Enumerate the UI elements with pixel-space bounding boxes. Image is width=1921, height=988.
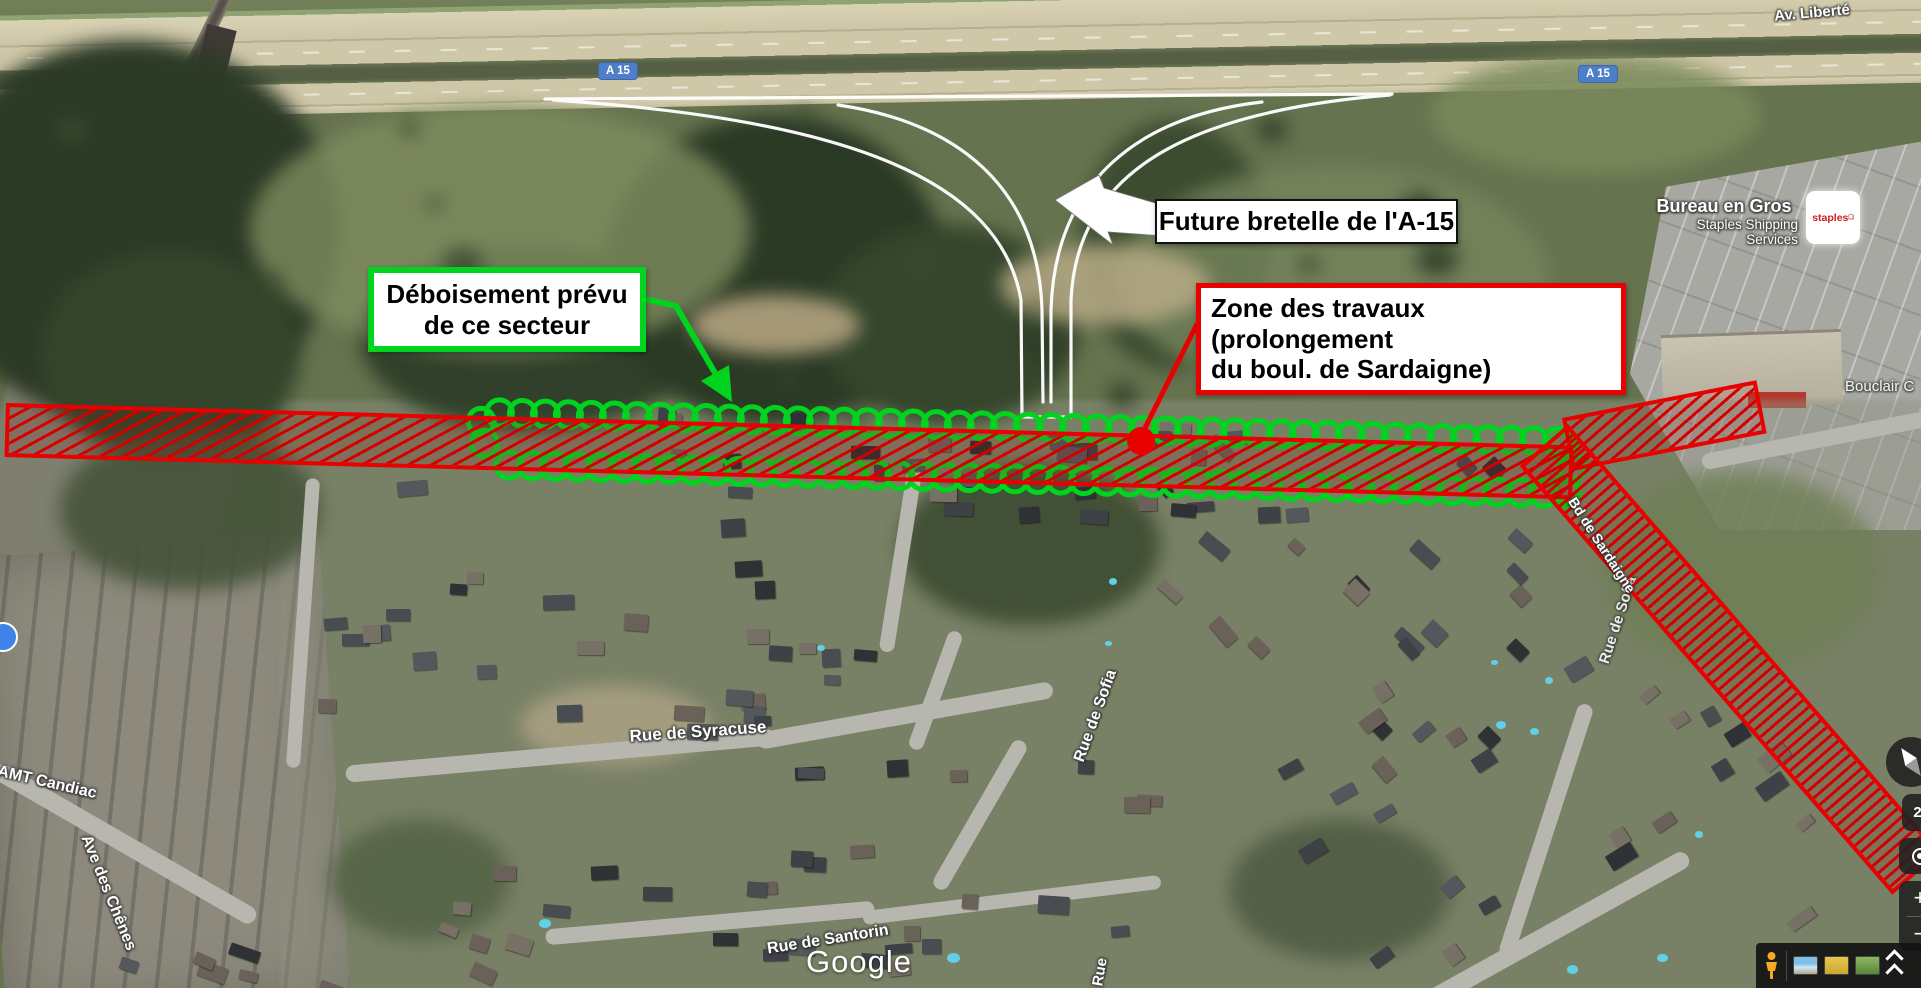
house-roof xyxy=(727,486,752,498)
house-roof xyxy=(850,844,875,859)
house-roof xyxy=(791,850,814,867)
poi-bureau-en-gros-block: Bureau en Gros Staples Shipping Services xyxy=(1648,196,1800,247)
house-roof xyxy=(1018,507,1039,525)
tree-blob xyxy=(732,367,756,386)
backyard-pool xyxy=(1545,677,1553,684)
house-roof xyxy=(887,760,909,778)
backyard-pool xyxy=(1657,954,1668,962)
house-roof xyxy=(747,881,769,898)
house-roof xyxy=(450,584,467,596)
house-roof xyxy=(721,518,746,538)
house-roof xyxy=(1037,895,1069,915)
backyard-pool xyxy=(1105,641,1112,646)
house-roof xyxy=(577,641,604,656)
house-roof xyxy=(543,595,574,611)
backyard-pool xyxy=(817,645,825,651)
expand-chevrons[interactable] xyxy=(1888,952,1901,979)
tree-blob xyxy=(400,120,420,136)
house-roof xyxy=(713,933,738,946)
label-deforestation-line2: de ce secteur xyxy=(376,310,638,341)
house-roof xyxy=(1110,925,1129,937)
compass-needle-icon xyxy=(1886,737,1921,787)
imagery-thumbnail-3[interactable] xyxy=(1855,956,1880,975)
house-roof xyxy=(755,581,775,600)
poi-label-staples-shipping: Staples Shipping xyxy=(1648,217,1800,232)
label-work-zone-line1: Zone des travaux (prolongement xyxy=(1211,293,1611,354)
house-roof xyxy=(726,689,754,707)
zoom-control: + − xyxy=(1899,881,1921,951)
house-roof xyxy=(452,901,471,916)
house-roof xyxy=(747,629,769,644)
tree-blob xyxy=(902,248,942,280)
house-roof xyxy=(1124,797,1150,813)
compass-control[interactable] xyxy=(1886,737,1921,787)
tree-blob xyxy=(262,274,284,292)
backyard-pool xyxy=(1695,831,1703,837)
house-roof xyxy=(556,704,582,722)
house-roof xyxy=(824,674,841,685)
house-roof xyxy=(673,705,704,722)
staples-logo-text: staples xyxy=(1812,212,1848,224)
house-roof xyxy=(624,614,649,632)
house-roof xyxy=(477,664,496,679)
house-roof xyxy=(922,939,941,954)
vegetation-blob xyxy=(330,820,510,940)
label-future-ramp: Future bretelle de l'A-15 xyxy=(1155,199,1458,244)
house-roof xyxy=(797,768,823,780)
backyard-pool xyxy=(1491,660,1498,666)
google-watermark: Google xyxy=(806,944,912,980)
label-deforestation-line1: Déboisement prévu xyxy=(376,279,638,310)
house-roof xyxy=(1139,496,1157,512)
house-roof xyxy=(642,886,672,900)
imagery-thumbnail-2[interactable] xyxy=(1824,956,1849,975)
map-canvas[interactable]: Future bretelle de l'A-15 Zone des trava… xyxy=(0,0,1921,988)
tree-blob xyxy=(918,397,934,410)
label-work-zone-line2: du boul. de Sardaigne) xyxy=(1211,354,1611,385)
house-roof xyxy=(904,926,920,941)
route-shield-a15-east: A 15 xyxy=(1578,65,1618,83)
backyard-pool xyxy=(1530,728,1539,735)
poi-label-bureau-en-gros: Bureau en Gros xyxy=(1648,196,1800,217)
tree-blob xyxy=(1119,201,1139,217)
house-roof xyxy=(854,649,877,661)
poi-label-services: Services xyxy=(1648,232,1800,247)
pegman-icon[interactable] xyxy=(1763,951,1780,981)
2d-toggle-button[interactable]: 2D xyxy=(1902,794,1921,831)
lane-markings xyxy=(0,20,1921,60)
house-roof xyxy=(1257,506,1280,523)
tree-blob xyxy=(1021,329,1063,362)
vegetation-blob xyxy=(690,295,860,355)
house-roof xyxy=(591,866,619,881)
tree-blob xyxy=(1298,256,1319,273)
house-roof xyxy=(1171,503,1197,518)
house-roof xyxy=(950,770,968,782)
house-roof xyxy=(799,643,816,654)
label-work-zone: Zone des travaux (prolongement du boul. … xyxy=(1196,283,1626,395)
house-roof xyxy=(413,651,437,670)
house-roof xyxy=(493,866,516,882)
house-roof xyxy=(944,502,974,516)
tree-blob xyxy=(56,117,87,142)
vegetation-blob xyxy=(1000,245,1210,325)
tree-blob xyxy=(1108,383,1137,406)
label-future-ramp-text: Future bretelle de l'A-15 xyxy=(1159,206,1454,237)
tree-blob xyxy=(796,109,815,124)
my-location-icon xyxy=(1912,848,1921,865)
house-roof xyxy=(543,904,571,919)
2d-toggle-label: 2D xyxy=(1913,804,1921,821)
tree-blob xyxy=(426,197,442,210)
bar-divider xyxy=(1786,951,1787,981)
imagery-thumbnail-1[interactable] xyxy=(1793,956,1818,975)
tree-blob xyxy=(1416,242,1458,276)
tree-blob xyxy=(1256,117,1288,142)
house-roof xyxy=(466,571,482,584)
poi-label-bouclair: Bouclair C xyxy=(1845,378,1914,395)
backyard-pool xyxy=(947,953,960,963)
house-roof xyxy=(386,609,410,621)
house-roof xyxy=(735,560,763,578)
route-shield-a15-west: A 15 xyxy=(598,62,638,80)
house-roof xyxy=(821,648,840,666)
house-roof xyxy=(323,617,347,630)
house-roof xyxy=(1079,509,1108,525)
zoom-in-button[interactable]: + xyxy=(1899,881,1921,916)
house-roof xyxy=(363,625,381,643)
streetview-bar xyxy=(1756,943,1921,988)
tree-blob xyxy=(1030,302,1044,313)
house-roof xyxy=(1285,507,1308,523)
my-location-button[interactable] xyxy=(1899,838,1921,874)
chevron-up-icon xyxy=(1885,963,1903,981)
house-roof xyxy=(318,699,337,713)
staples-logo[interactable]: staples❑ xyxy=(1806,191,1860,244)
house-roof xyxy=(768,645,792,661)
vegetation-blob xyxy=(1230,820,1450,960)
staples-logo-mark: ❑ xyxy=(1848,214,1853,221)
house-roof xyxy=(962,893,979,909)
label-deforestation: Déboisement prévu de ce secteur xyxy=(368,267,646,352)
